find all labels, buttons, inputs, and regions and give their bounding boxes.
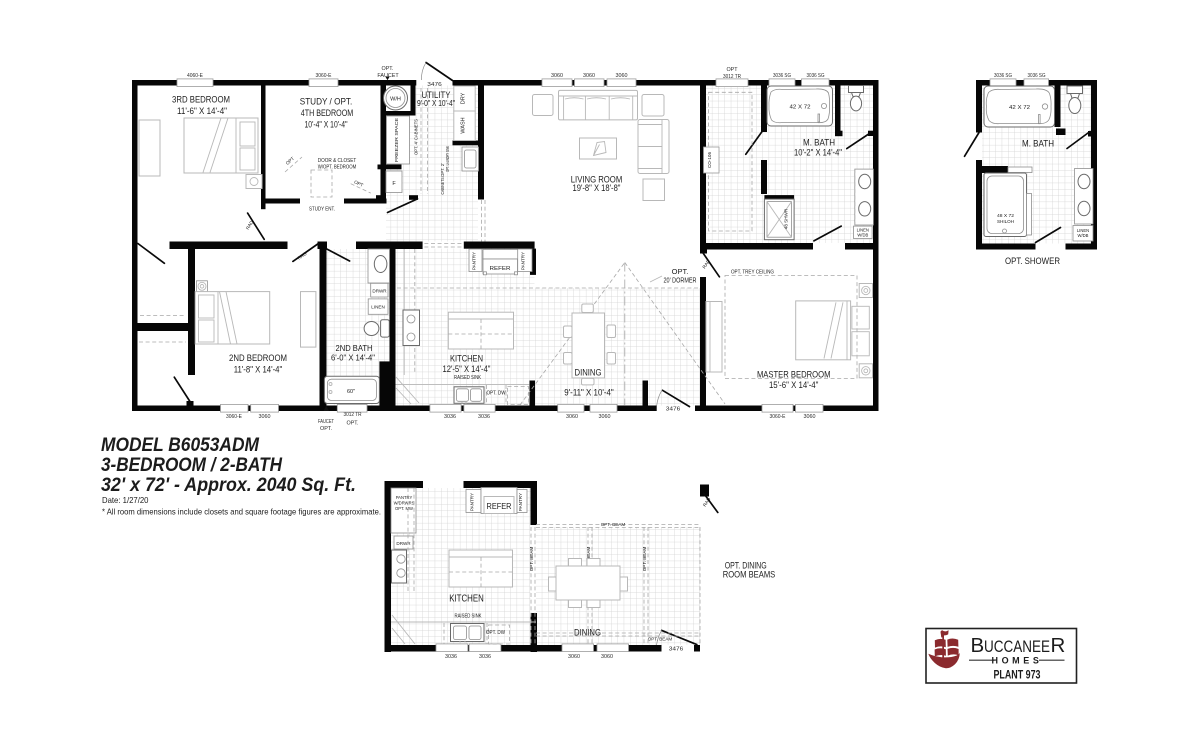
svg-text:OPT. DW: OPT. DW	[487, 391, 507, 397]
svg-text:WASH: WASH	[461, 117, 467, 133]
svg-text:10'-4" X 10'-4": 10'-4" X 10'-4"	[305, 120, 348, 131]
svg-text:3036 SG: 3036 SG	[1028, 73, 1046, 79]
svg-text:15'-6" X 14'-4": 15'-6" X 14'-4"	[769, 380, 819, 391]
svg-text:PANTRY: PANTRY	[521, 252, 526, 270]
svg-text:11'-8" X 14'-4": 11'-8" X 14'-4"	[234, 365, 283, 376]
svg-text:PANTRY: PANTRY	[518, 493, 523, 511]
svg-text:UCCANEE: UCCANEE	[984, 638, 1050, 656]
svg-text:3036 SG: 3036 SG	[994, 73, 1012, 79]
svg-text:3060: 3060	[259, 414, 271, 420]
svg-text:* All room dimensions include: * All room dimensions include closets an…	[102, 507, 381, 517]
svg-text:3060: 3060	[601, 654, 613, 660]
svg-text:DINING: DINING	[574, 627, 601, 638]
svg-text:3060: 3060	[551, 73, 563, 79]
svg-text:CO-106: CO-106	[707, 152, 712, 169]
svg-text:KITCHEN: KITCHEN	[450, 354, 483, 365]
svg-text:3476: 3476	[666, 407, 681, 413]
svg-text:OPT. 2': OPT. 2'	[440, 163, 445, 177]
svg-text:W/OPT. BEDROOM: W/OPT. BEDROOM	[318, 165, 357, 171]
svg-text:OPT. SHOWER: OPT. SHOWER	[1005, 256, 1060, 267]
svg-text:DINING: DINING	[575, 367, 602, 378]
svg-text:3012 TR: 3012 TR	[723, 74, 741, 80]
svg-text:OPT: OPT	[726, 67, 738, 73]
svg-text:W/H: W/H	[390, 97, 401, 103]
svg-text:B: B	[971, 634, 985, 657]
svg-text:OPT. LAUNDRY SINK: OPT. LAUNDRY SINK	[445, 145, 450, 172]
svg-text:10'-2" X 14'-4": 10'-2" X 14'-4"	[794, 148, 842, 159]
svg-text:3060: 3060	[616, 73, 628, 79]
svg-text:OPT. BEAM: OPT. BEAM	[601, 522, 626, 527]
svg-text:HOMES: HOMES	[991, 655, 1042, 665]
svg-text:3036: 3036	[445, 654, 457, 660]
svg-text:RAISED SINK: RAISED SINK	[455, 614, 482, 620]
svg-text:DRY: DRY	[461, 92, 467, 104]
svg-text:M. BATH: M. BATH	[1022, 138, 1054, 149]
svg-text:12'-5" X 14'-4": 12'-5" X 14'-4"	[443, 364, 491, 375]
svg-text:4TH BEDROOM: 4TH BEDROOM	[301, 108, 354, 119]
svg-text:STUDY ENT.: STUDY ENT.	[309, 207, 335, 213]
svg-text:3060: 3060	[568, 654, 580, 660]
svg-text:MASTER BEDROOM: MASTER BEDROOM	[757, 369, 831, 380]
svg-text:3060-E: 3060-E	[316, 73, 332, 79]
svg-text:60": 60"	[347, 389, 355, 395]
svg-text:3036: 3036	[479, 654, 491, 660]
svg-text:OPT.: OPT.	[382, 66, 394, 72]
svg-text:OPT. MW: OPT. MW	[395, 506, 413, 511]
svg-text:9'-11" X 10'-4": 9'-11" X 10'-4"	[564, 387, 614, 398]
svg-text:4060-E: 4060-E	[187, 73, 203, 79]
svg-text:3476: 3476	[669, 647, 684, 653]
svg-text:32' x 72' - Approx. 2040 Sq. F: 32' x 72' - Approx. 2040 Sq. Ft.	[101, 475, 356, 496]
svg-text:FAUCET: FAUCET	[377, 73, 399, 79]
svg-text:RAISED SINK: RAISED SINK	[454, 375, 481, 381]
svg-text:3060-E: 3060-E	[770, 414, 786, 420]
svg-text:OPT. 4' CABINETS: OPT. 4' CABINETS	[414, 119, 419, 155]
svg-text:PANTRY: PANTRY	[472, 252, 477, 270]
svg-text:20' DORMER: 20' DORMER	[664, 276, 697, 285]
svg-text:3060: 3060	[804, 414, 816, 420]
svg-text:W/DB: W/DB	[857, 233, 868, 238]
svg-text:OPT. DW: OPT. DW	[486, 630, 506, 636]
svg-text:11'-6" X 14'-4": 11'-6" X 14'-4"	[177, 106, 227, 117]
svg-text:OPT. BEAM: OPT. BEAM	[642, 547, 647, 572]
svg-text:MODEL B6053ADM: MODEL B6053ADM	[101, 435, 260, 456]
svg-text:REFER: REFER	[487, 501, 512, 511]
svg-text:48 X 72: 48 X 72	[997, 213, 1014, 218]
svg-text:KITCHEN: KITCHEN	[449, 594, 484, 605]
svg-text:PANTRY: PANTRY	[396, 495, 413, 500]
svg-text:W/DRWRS: W/DRWRS	[394, 501, 415, 506]
svg-text:REFER: REFER	[490, 266, 511, 272]
svg-text:3476: 3476	[427, 82, 442, 88]
svg-text:CABINETS: CABINETS	[440, 178, 445, 195]
svg-text:3-BEDROOM / 2-BATH: 3-BEDROOM / 2-BATH	[101, 455, 283, 476]
svg-text:PLANT 973: PLANT 973	[994, 670, 1041, 682]
svg-text:PANTRY: PANTRY	[470, 493, 475, 511]
svg-text:6'-0" X 14'-4": 6'-0" X 14'-4"	[331, 353, 375, 363]
svg-text:3036: 3036	[478, 414, 490, 420]
svg-text:ROOM BEAMS: ROOM BEAMS	[723, 569, 776, 580]
svg-text:DRWR: DRWR	[396, 541, 411, 546]
svg-text:OPT.: OPT.	[320, 426, 332, 432]
svg-text:OPT.: OPT.	[347, 421, 359, 427]
svg-text:3060: 3060	[566, 414, 578, 420]
svg-text:DOOR & CLOSET: DOOR & CLOSET	[318, 158, 357, 164]
svg-text:9'-0" X 10'-4": 9'-0" X 10'-4"	[417, 98, 455, 108]
svg-text:3060: 3060	[599, 414, 611, 420]
svg-text:2ND BATH: 2ND BATH	[336, 343, 373, 353]
svg-text:3RD BEDROOM: 3RD BEDROOM	[172, 94, 230, 105]
svg-text:OPT. BEAM: OPT. BEAM	[529, 547, 534, 572]
svg-text:STUDY / OPT.: STUDY / OPT.	[300, 96, 353, 107]
svg-text:FREEZER SPACE: FREEZER SPACE	[394, 118, 399, 162]
svg-text:R: R	[1051, 634, 1066, 657]
svg-text:3036 SG: 3036 SG	[807, 73, 825, 79]
svg-text:OPT. TREY CEILING: OPT. TREY CEILING	[731, 270, 774, 276]
svg-text:Date: 1/27/20: Date: 1/27/20	[102, 495, 149, 505]
svg-text:3036 SG: 3036 SG	[773, 73, 791, 79]
svg-text:OPT. BEAM: OPT. BEAM	[648, 637, 673, 642]
svg-text:LINEN: LINEN	[371, 305, 385, 310]
svg-text:3012 TR: 3012 TR	[344, 412, 362, 418]
svg-text:3036: 3036	[444, 414, 456, 420]
svg-text:SHILOH: SHILOH	[997, 219, 1014, 224]
svg-text:3060-E: 3060-E	[226, 414, 242, 420]
svg-text:FAUCET: FAUCET	[318, 419, 335, 425]
svg-text:3060: 3060	[583, 73, 595, 79]
svg-text:42 X 72: 42 X 72	[1009, 105, 1030, 111]
svg-text:48 SHWR: 48 SHWR	[784, 208, 789, 229]
svg-text:42 X 72: 42 X 72	[790, 105, 811, 111]
svg-text:DRWR: DRWR	[372, 289, 387, 294]
svg-text:19'-8" X 18'-8": 19'-8" X 18'-8"	[573, 183, 621, 194]
svg-text:2ND BEDROOM: 2ND BEDROOM	[229, 353, 287, 364]
svg-text:W/DB: W/DB	[1078, 233, 1089, 238]
